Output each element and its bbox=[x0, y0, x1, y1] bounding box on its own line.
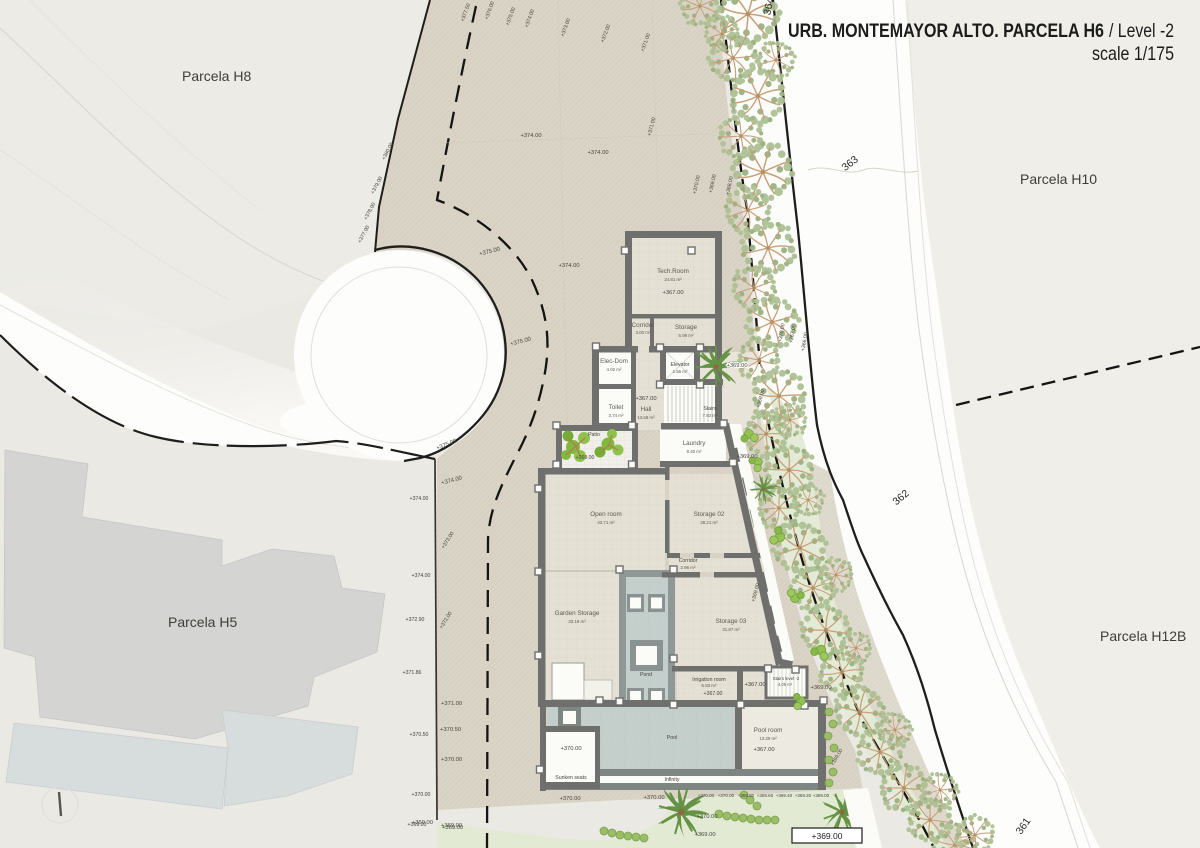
svg-text:+369.20: +369.20 bbox=[795, 793, 812, 798]
svg-text:+369.40: +369.40 bbox=[776, 793, 793, 798]
svg-text:URB. MONTEMAYOR ALTO. PARCELA: URB. MONTEMAYOR ALTO. PARCELA H6 bbox=[788, 20, 1104, 42]
svg-text:Storage 03: Storage 03 bbox=[716, 618, 747, 625]
svg-text:+371.86: +371.86 bbox=[403, 670, 422, 676]
svg-text:24.81 m²: 24.81 m² bbox=[664, 277, 682, 282]
svg-text:Parcela H8: Parcela H8 bbox=[182, 68, 251, 84]
svg-text:+370.00: +370.00 bbox=[643, 795, 664, 801]
svg-text:28.21 m²: 28.21 m² bbox=[700, 520, 718, 525]
svg-text:6.99 m²: 6.99 m² bbox=[679, 333, 694, 338]
svg-text:Pool: Pool bbox=[667, 735, 677, 741]
svg-text:+374.00: +374.00 bbox=[520, 133, 541, 139]
svg-text:+371.00: +371.00 bbox=[441, 701, 462, 707]
svg-text:scale 1/175: scale 1/175 bbox=[1092, 43, 1174, 65]
svg-text:Sunken seats: Sunken seats bbox=[555, 775, 587, 781]
svg-text:Garden Storage: Garden Storage bbox=[555, 610, 600, 617]
svg-text:+374.00: +374.00 bbox=[558, 263, 579, 269]
svg-text:6.83 m²: 6.83 m² bbox=[702, 683, 717, 688]
svg-text:+369.00: +369.00 bbox=[810, 685, 831, 691]
svg-text:+372.90: +372.90 bbox=[406, 617, 425, 623]
svg-text:+374.00: +374.00 bbox=[587, 150, 608, 156]
svg-text:+370.00: +370.00 bbox=[698, 793, 715, 798]
svg-text:4.09 m²: 4.09 m² bbox=[778, 682, 793, 687]
svg-text:Parcela H10: Parcela H10 bbox=[1020, 171, 1097, 187]
svg-text:Storage: Storage bbox=[675, 324, 698, 331]
svg-text:Open room: Open room bbox=[590, 511, 622, 518]
svg-text:Hall: Hall bbox=[641, 406, 652, 413]
svg-text:Patio: Patio bbox=[588, 432, 600, 438]
svg-text:+369.00: +369.00 bbox=[726, 363, 747, 369]
svg-text:43.71 m²: 43.71 m² bbox=[597, 520, 615, 525]
svg-text:Parcela H5: Parcela H5 bbox=[168, 614, 237, 630]
svg-text:4.02 m²: 4.02 m² bbox=[607, 367, 622, 372]
svg-text:+369.00: +369.00 bbox=[812, 831, 843, 841]
svg-text:Infinity: Infinity bbox=[665, 777, 680, 783]
svg-text:31.87 m²: 31.87 m² bbox=[722, 627, 740, 632]
svg-text:2.96 m²: 2.96 m² bbox=[681, 565, 696, 570]
svg-text:+367.00: +367.00 bbox=[704, 691, 723, 697]
svg-text:+369.80: +369.80 bbox=[738, 793, 755, 798]
svg-text:+369.60: +369.60 bbox=[757, 793, 774, 798]
svg-text:+370.00: +370.00 bbox=[718, 793, 735, 798]
svg-text:Parcela H12B: Parcela H12B bbox=[1100, 628, 1186, 644]
svg-text:+374.00: +374.00 bbox=[412, 573, 431, 579]
svg-text:Storage 02: Storage 02 bbox=[694, 511, 725, 518]
svg-text:+370.00: +370.00 bbox=[559, 796, 580, 802]
svg-text:+369.00: +369.00 bbox=[813, 793, 830, 798]
svg-text:+370.00: +370.00 bbox=[560, 746, 581, 752]
svg-text:Elevator: Elevator bbox=[670, 362, 689, 368]
svg-text:+369.00: +369.00 bbox=[441, 823, 462, 829]
svg-text:Laundry: Laundry bbox=[683, 440, 707, 447]
svg-text:+369.00: +369.00 bbox=[736, 454, 757, 460]
svg-text:Tech.Room: Tech.Room bbox=[657, 268, 689, 275]
svg-text:+370.50: +370.50 bbox=[440, 727, 461, 733]
svg-text:Corridor: Corridor bbox=[632, 322, 655, 329]
svg-text:+370.00: +370.00 bbox=[696, 814, 717, 820]
svg-text:+369.00: +369.00 bbox=[576, 455, 595, 461]
svg-text:3.74 m²: 3.74 m² bbox=[609, 413, 624, 418]
svg-text:+369.00: +369.00 bbox=[694, 832, 715, 838]
svg-text:Elec-Dom: Elec-Dom bbox=[600, 358, 628, 365]
svg-text:Pond: Pond bbox=[640, 672, 652, 678]
svg-text:+367.00: +367.00 bbox=[753, 747, 774, 753]
svg-text:33.18 m²: 33.18 m² bbox=[568, 619, 586, 624]
svg-text:+367.00: +367.00 bbox=[662, 290, 683, 296]
svg-text:13.68 m²: 13.68 m² bbox=[637, 415, 655, 420]
svg-text:2.56 m²: 2.56 m² bbox=[673, 369, 688, 374]
svg-text:+370.00: +370.00 bbox=[412, 792, 431, 798]
svg-text:+367.00: +367.00 bbox=[744, 682, 765, 688]
svg-text:3.00 m²: 3.00 m² bbox=[636, 330, 651, 335]
svg-text:Stairs level -2: Stairs level -2 bbox=[773, 676, 800, 681]
svg-text:+370.50: +370.50 bbox=[410, 732, 429, 738]
svg-text:Stairs: Stairs bbox=[703, 406, 717, 412]
svg-text:+369.00: +369.00 bbox=[412, 820, 433, 826]
svg-text:13.39 m²: 13.39 m² bbox=[759, 736, 777, 741]
svg-text:Corridor: Corridor bbox=[679, 558, 698, 564]
svg-text:9.40 m²: 9.40 m² bbox=[687, 449, 702, 454]
svg-text:+374.00: +374.00 bbox=[410, 496, 429, 502]
svg-text:+367.00: +367.00 bbox=[635, 396, 656, 402]
svg-text:/ Level -2: / Level -2 bbox=[1109, 20, 1174, 42]
svg-text:Toilet: Toilet bbox=[609, 404, 624, 411]
svg-text:+370.00: +370.00 bbox=[441, 757, 462, 763]
svg-text:7.93 m²: 7.93 m² bbox=[703, 413, 718, 418]
svg-text:Pool room: Pool room bbox=[754, 727, 783, 734]
